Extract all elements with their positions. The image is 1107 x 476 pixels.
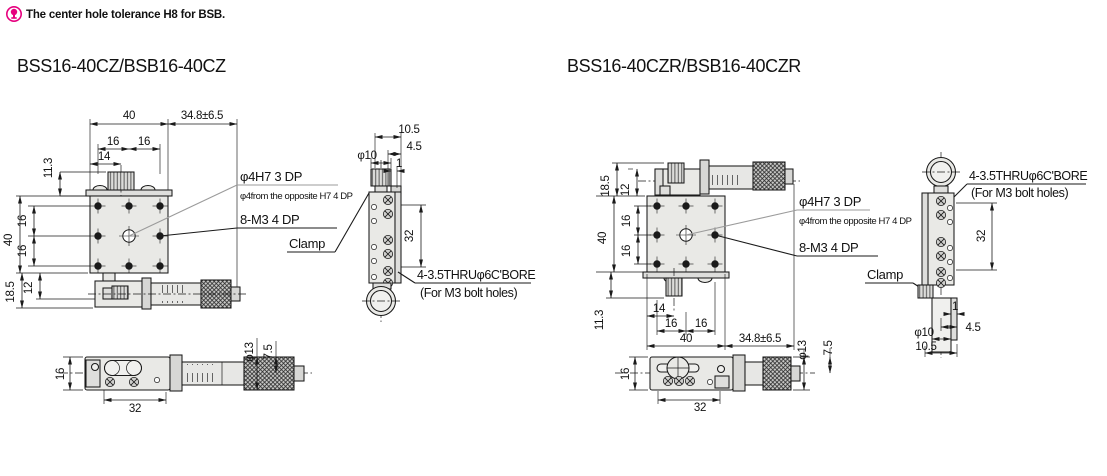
dim-r-base-sub: 12 <box>620 184 632 196</box>
stage-body <box>86 165 172 274</box>
clamp-knob <box>108 172 134 190</box>
model-title-right: BSS16-40CZR/BSB16-40CZR <box>567 56 801 76</box>
dim-r-hole-span-b: 16 <box>695 318 707 330</box>
dim-r-hole-vspan-b: 16 <box>621 245 633 257</box>
dim-hole-span-b: 16 <box>138 136 150 148</box>
dim-side-step: 1 <box>396 158 402 170</box>
callout-r-opposite-hole: φ4from the opposite H7 4 DP <box>799 216 912 227</box>
knurled-knob-top <box>753 162 785 190</box>
dim-r-base-height: 18.5 <box>600 175 612 196</box>
dim-stage-height: 40 <box>3 234 15 246</box>
dim-r-bottom-height: 16 <box>620 368 632 380</box>
dim-r-side-step: 1 <box>952 301 958 313</box>
left-side-view: 10.5 4.5 1 φ10 32 4-3.5THRUφ6C'BORE (For… <box>357 124 535 322</box>
side-clamp-knob-right <box>918 285 933 298</box>
top-clamp-knob <box>668 163 684 183</box>
dim-r-width: 40 <box>680 333 692 345</box>
dim-side-subwidth: 4.5 <box>406 141 421 153</box>
left-model: BSS16-40CZ/BSB16-40CZ <box>3 56 535 415</box>
bottom-clamp-knob <box>666 278 682 296</box>
catalog-drawing-page: The center hole tolerance H8 for BSB. BS… <box>0 0 1107 476</box>
callout-tapped-holes: 8-M3 4 DP <box>240 212 299 227</box>
callout-r-clamp: Clamp <box>867 267 903 282</box>
dim-r-knob13-dia: φ13 <box>797 340 809 359</box>
callout-center-hole: φ4H7 3 DP <box>240 169 302 184</box>
left-front-view: 40 34.8±6.5 16 16 14 11.3 40 16 16 18.5 … <box>3 110 369 309</box>
callout-r-tapped-holes: 8-M3 4 DP <box>799 240 858 255</box>
dim-hole-vspan-b: 16 <box>17 245 29 257</box>
dim-r-bottom-span: 32 <box>694 402 706 414</box>
callout-r-cbore-sub: (For M3 bolt holes) <box>971 186 1069 200</box>
dim-hole-vspan-a: 16 <box>17 215 29 227</box>
dim-knob13-dia: φ13 <box>244 342 256 361</box>
callout-r-center-hole: φ4H7 3 DP <box>799 194 861 209</box>
dim-r-knob-length: 7.5 <box>823 340 835 355</box>
micrometer-bottom <box>88 273 246 309</box>
dim-knob-offset: 14 <box>98 151 111 163</box>
model-title-left: BSS16-40CZ/BSB16-40CZ <box>17 56 226 76</box>
dim-r-stage-height: 40 <box>597 232 609 244</box>
callout-r-cbore: 4-3.5THRUφ6C'BORE <box>969 169 1087 183</box>
knurled-knob-bottom-right <box>763 357 791 390</box>
dim-bolt-span: 32 <box>404 230 416 242</box>
dim-r-side-width: 10.5 <box>915 341 936 353</box>
dim-base-sub: 12 <box>23 282 35 294</box>
dim-r-knob-height: 11.3 <box>594 310 606 330</box>
note-text: The center hole tolerance H8 for BSB. <box>26 9 225 21</box>
callout-cbore-sub: (For M3 bolt holes) <box>420 286 518 300</box>
drawing-canvas: The center hole tolerance H8 for BSB. BS… <box>0 0 1107 476</box>
callout-clamp: Clamp <box>289 236 325 251</box>
dim-bottom-span: 32 <box>129 403 141 415</box>
callout-opposite-hole: φ4from the opposite H7 4 DP <box>240 191 353 202</box>
dim-r-knob-offset: 14 <box>653 303 666 315</box>
dim-r-knob-dia: φ10 <box>914 327 933 339</box>
note: The center hole tolerance H8 for BSB. <box>7 7 225 21</box>
dim-r-hole-vspan-a: 16 <box>621 215 633 227</box>
dim-bottom-height: 16 <box>55 368 67 380</box>
dim-r-travel: 34.8±6.5 <box>739 333 781 345</box>
left-bottom-view: 16 32 φ13 7.5 <box>55 338 312 415</box>
right-front-view: 18.5 12 40 16 16 11.3 14 16 16 40 34.8±6… <box>594 160 927 350</box>
dim-knob-dia: φ10 <box>357 150 376 162</box>
callout-cbore: 4-3.5THRUφ6C'BORE <box>417 268 535 282</box>
right-side-view: 4-3.5THRUφ6C'BORE (For M3 bolt holes) 32… <box>914 152 1087 358</box>
dim-r-side-subwidth: 4.5 <box>965 322 980 334</box>
right-bottom-view: 16 32 φ13 7.5 <box>615 340 835 414</box>
stage-body-right <box>643 196 729 312</box>
dim-travel: 34.8±6.5 <box>181 110 223 122</box>
dim-knob-length: 7.5 <box>263 344 275 359</box>
dim-hole-span-a: 16 <box>107 136 119 148</box>
dim-side-width: 10.5 <box>398 124 419 136</box>
dim-r-hole-span-a: 16 <box>665 318 677 330</box>
dim-base-height: 18.5 <box>5 281 17 302</box>
micrometer-top <box>638 160 800 195</box>
dim-knob-height: 11.3 <box>43 158 55 178</box>
precision-icon <box>7 7 21 21</box>
right-model: BSS16-40CZR/BSB16-40CZR <box>567 56 1087 414</box>
dim-top-width: 40 <box>123 110 135 122</box>
dim-r-bolt-span: 32 <box>976 230 988 242</box>
base-clamp-knob <box>112 286 128 299</box>
